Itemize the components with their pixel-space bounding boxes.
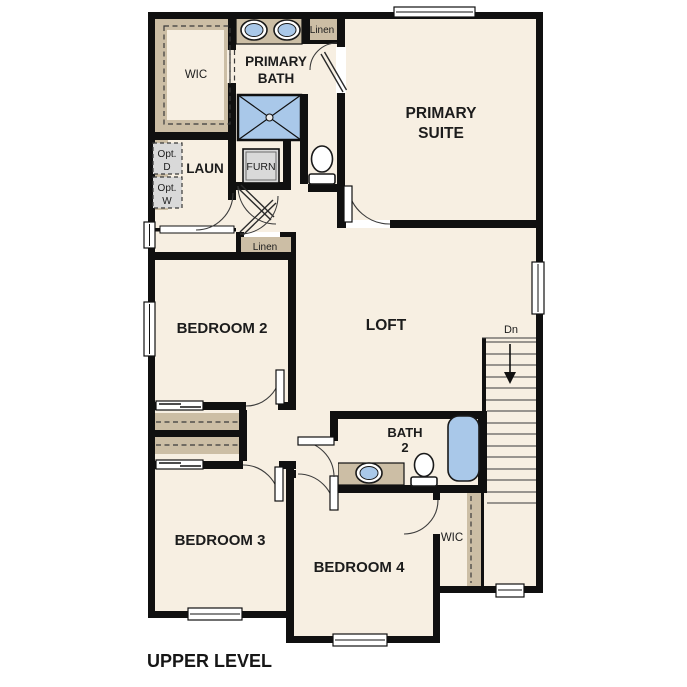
floor-plan-page: PRIMARY SUITE PRIMARY BATH WIC LAUN Opt.… — [0, 0, 687, 687]
stair-rail — [482, 338, 486, 411]
primary-wic-label: WIC — [185, 69, 207, 81]
floor-plan-drawing: PRIMARY SUITE PRIMARY BATH WIC LAUN Opt.… — [0, 0, 687, 687]
toilet-icon — [309, 146, 335, 184]
primary-bath-label-line1: PRIMARY — [245, 54, 307, 69]
primary-suite-label-line2: SUITE — [418, 125, 464, 142]
window — [394, 7, 475, 17]
door-leaf — [275, 467, 283, 501]
primary-suite-label-line1: PRIMARY — [406, 105, 478, 122]
furnace-label: FURN — [246, 161, 275, 173]
shower — [238, 95, 301, 140]
loft-label: LOFT — [366, 317, 407, 334]
bath2-label-line1: BATH — [387, 425, 422, 440]
window — [333, 634, 387, 646]
opt-dryer-label-line1: Opt. — [158, 149, 177, 160]
door-leaf — [344, 186, 352, 222]
bedroom4-wic-shelf — [467, 493, 481, 586]
window — [532, 262, 544, 314]
primary-bath-label-line2: BATH — [258, 71, 295, 86]
stairs-down-label: Dn — [504, 324, 518, 336]
page-title: UPPER LEVEL — [147, 651, 272, 671]
bedroom2-label: BEDROOM 2 — [177, 320, 268, 337]
window — [144, 302, 155, 356]
laundry-label: LAUN — [186, 161, 224, 176]
door-leaf — [330, 476, 338, 510]
window — [188, 608, 242, 620]
bedroom2-closet-sliding-door — [156, 401, 203, 410]
sink-icon — [356, 463, 382, 483]
sink-icon — [241, 20, 267, 40]
opt-washer-label-line2: W — [162, 196, 172, 207]
bedroom3-label: BEDROOM 3 — [175, 532, 266, 549]
window — [496, 584, 524, 597]
linen-top-label: Linen — [310, 25, 334, 36]
window — [144, 222, 155, 248]
linen-hall-label: Linen — [253, 242, 277, 253]
opt-dryer-label-line2: D — [163, 162, 170, 173]
bath2-label-line2: 2 — [401, 440, 408, 455]
bedroom3-closet-sliding-door — [156, 460, 203, 469]
bedroom4-wic-label: WIC — [441, 532, 463, 544]
opt-washer-label-line1: Opt. — [158, 183, 177, 194]
sink-icon — [274, 20, 300, 40]
bedroom4-label: BEDROOM 4 — [314, 559, 406, 576]
door-leaf — [298, 437, 334, 445]
bathtub — [448, 416, 479, 481]
door-leaf — [276, 370, 284, 404]
